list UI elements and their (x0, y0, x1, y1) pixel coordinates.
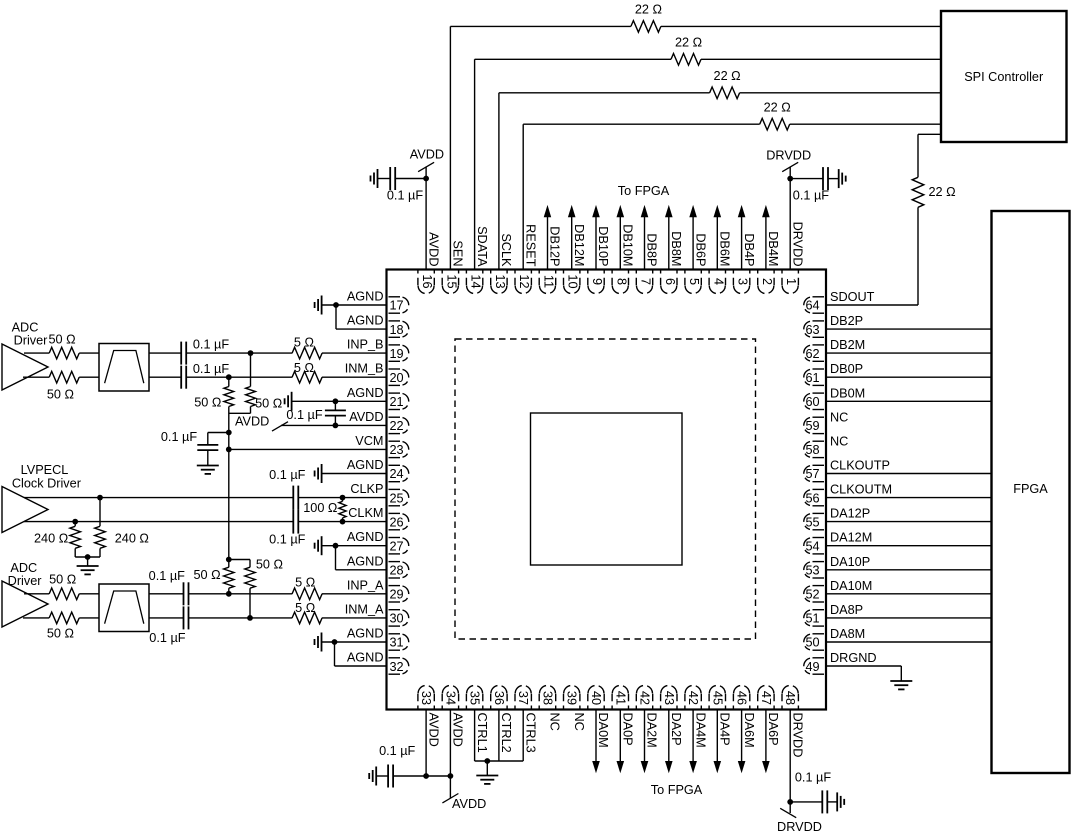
svg-text:50 Ω: 50 Ω (194, 396, 221, 410)
svg-text:22 Ω: 22 Ω (764, 100, 791, 114)
svg-text:DA4M: DA4M (693, 713, 707, 748)
svg-text:DA0M: DA0M (596, 713, 610, 748)
svg-text:DB8P: DB8P (645, 233, 659, 266)
svg-text:33: 33 (419, 691, 433, 705)
svg-text:DA2M: DA2M (645, 713, 659, 748)
svg-text:22 Ω: 22 Ω (675, 35, 702, 49)
svg-text:FPGA: FPGA (1013, 482, 1048, 496)
svg-text:CTRL3: CTRL3 (523, 713, 537, 753)
svg-text:50: 50 (805, 636, 819, 650)
svg-text:64: 64 (805, 299, 819, 313)
svg-text:1: 1 (784, 278, 798, 285)
svg-text:5 Ω: 5 Ω (295, 576, 315, 590)
svg-text:NC: NC (830, 410, 848, 424)
svg-text:8: 8 (614, 278, 628, 285)
svg-text:35: 35 (468, 691, 482, 705)
svg-text:22 Ω: 22 Ω (714, 69, 741, 83)
svg-text:4: 4 (711, 278, 725, 285)
svg-text:22 Ω: 22 Ω (635, 3, 662, 17)
svg-text:37: 37 (516, 691, 530, 705)
svg-text:18: 18 (389, 323, 403, 337)
svg-text:To FPGA: To FPGA (651, 783, 703, 797)
svg-text:100 Ω: 100 Ω (303, 501, 337, 515)
svg-text:AGND: AGND (347, 554, 384, 568)
svg-text:INM_B: INM_B (345, 362, 384, 376)
svg-text:20: 20 (389, 371, 403, 385)
svg-text:57: 57 (805, 467, 819, 481)
svg-text:240 Ω: 240 Ω (34, 531, 68, 545)
svg-text:CLKP: CLKP (350, 482, 383, 496)
svg-text:2: 2 (760, 278, 774, 285)
svg-text:AVDD: AVDD (410, 148, 444, 162)
svg-text:SDOUT: SDOUT (830, 290, 875, 304)
svg-text:22: 22 (389, 419, 403, 433)
svg-text:50 Ω: 50 Ω (48, 333, 75, 347)
svg-text:Clock Driver: Clock Driver (12, 477, 82, 491)
svg-text:22 Ω: 22 Ω (929, 185, 956, 199)
svg-text:23: 23 (389, 443, 403, 457)
svg-text:30: 30 (389, 612, 403, 626)
svg-text:AVDD: AVDD (451, 713, 465, 747)
svg-text:AGND: AGND (347, 627, 384, 641)
svg-text:54: 54 (805, 539, 819, 553)
svg-text:DA8M: DA8M (830, 627, 865, 641)
svg-text:0.1 µF: 0.1 µF (161, 430, 197, 444)
svg-text:47: 47 (759, 691, 773, 705)
svg-text:AGND: AGND (347, 386, 384, 400)
svg-text:25: 25 (389, 491, 403, 505)
svg-text:DRGND: DRGND (830, 651, 877, 665)
svg-text:0.1 µF: 0.1 µF (269, 468, 305, 482)
svg-text:DB6M: DB6M (718, 231, 732, 266)
svg-text:DRVDD: DRVDD (766, 149, 811, 163)
svg-text:AGND: AGND (347, 530, 384, 544)
svg-text:60: 60 (805, 395, 819, 409)
svg-text:50 Ω: 50 Ω (47, 388, 74, 402)
svg-text:DRVDD: DRVDD (777, 820, 822, 832)
svg-text:To FPGA: To FPGA (618, 184, 670, 198)
svg-text:DA12P: DA12P (830, 507, 870, 521)
svg-text:AGND: AGND (347, 458, 384, 472)
svg-text:58: 58 (805, 443, 819, 457)
svg-text:SCLK: SCLK (499, 233, 513, 267)
svg-text:45: 45 (710, 691, 724, 705)
svg-text:AVDD: AVDD (452, 797, 486, 811)
svg-text:39: 39 (565, 691, 579, 705)
svg-text:0.1 µF: 0.1 µF (193, 338, 229, 352)
svg-text:VCM: VCM (355, 434, 383, 448)
svg-text:36: 36 (492, 691, 506, 705)
svg-text:53: 53 (805, 564, 819, 578)
svg-text:24: 24 (389, 467, 403, 481)
svg-text:5 Ω: 5 Ω (294, 335, 314, 349)
svg-text:0.1 µF: 0.1 µF (387, 189, 423, 203)
svg-text:CTRL2: CTRL2 (499, 713, 513, 753)
svg-text:5 Ω: 5 Ω (294, 361, 314, 375)
svg-text:AVDD: AVDD (426, 713, 440, 747)
svg-text:0.1 µF: 0.1 µF (793, 189, 829, 203)
svg-text:49: 49 (805, 660, 819, 674)
svg-text:32: 32 (389, 660, 403, 674)
svg-text:DB0P: DB0P (830, 362, 863, 376)
svg-text:DA12M: DA12M (830, 531, 872, 545)
svg-text:51: 51 (805, 612, 819, 626)
svg-text:SEN: SEN (451, 240, 465, 266)
svg-text:AVDD: AVDD (426, 232, 440, 266)
svg-text:AGND: AGND (347, 651, 384, 665)
svg-text:19: 19 (389, 347, 403, 361)
svg-text:DB12M: DB12M (572, 224, 586, 266)
svg-text:SDATA: SDATA (475, 226, 489, 267)
svg-text:DB8M: DB8M (669, 231, 683, 266)
svg-text:46: 46 (735, 691, 749, 705)
svg-text:9: 9 (590, 278, 604, 285)
svg-text:6: 6 (663, 278, 677, 285)
svg-text:0.1 µF: 0.1 µF (379, 744, 415, 758)
svg-text:0.1 µF: 0.1 µF (795, 771, 831, 785)
svg-text:DB10M: DB10M (621, 224, 635, 266)
svg-text:DB4P: DB4P (742, 233, 756, 266)
svg-text:10: 10 (566, 274, 580, 288)
svg-text:41: 41 (613, 691, 627, 705)
svg-text:DA10P: DA10P (830, 555, 870, 569)
svg-text:0.1 µF: 0.1 µF (269, 533, 305, 547)
svg-text:RESET: RESET (523, 224, 537, 267)
svg-text:240 Ω: 240 Ω (115, 531, 149, 545)
svg-text:3: 3 (736, 278, 750, 285)
svg-text:CLKOUTP: CLKOUTP (830, 459, 890, 473)
svg-text:SPI Controller: SPI Controller (964, 70, 1044, 84)
svg-text:0.1 µF: 0.1 µF (149, 631, 185, 645)
svg-text:NC: NC (830, 434, 848, 448)
svg-text:INM_A: INM_A (345, 602, 384, 616)
svg-text:INP_A: INP_A (347, 578, 384, 592)
svg-text:0.1 µF: 0.1 µF (193, 362, 229, 376)
svg-text:DB2P: DB2P (830, 314, 863, 328)
svg-text:50 Ω: 50 Ω (49, 572, 76, 586)
svg-text:42: 42 (686, 691, 700, 705)
svg-text:43: 43 (662, 691, 676, 705)
svg-text:DB10P: DB10P (596, 226, 610, 266)
svg-text:DA10M: DA10M (830, 579, 872, 593)
svg-text:NC: NC (572, 713, 586, 731)
svg-text:63: 63 (805, 323, 819, 337)
svg-text:59: 59 (805, 419, 819, 433)
svg-text:DRVDD: DRVDD (790, 713, 804, 758)
svg-text:52: 52 (805, 588, 819, 602)
svg-text:11: 11 (542, 275, 556, 288)
svg-text:DB6P: DB6P (693, 233, 707, 266)
svg-text:5 Ω: 5 Ω (295, 601, 315, 615)
svg-text:26: 26 (389, 515, 403, 529)
svg-text:LVPECL: LVPECL (21, 463, 69, 477)
svg-text:CLKM: CLKM (348, 506, 383, 520)
svg-text:ADC: ADC (12, 321, 39, 335)
svg-text:40: 40 (589, 691, 603, 705)
svg-text:50 Ω: 50 Ω (256, 558, 283, 572)
svg-text:DA6M: DA6M (742, 713, 756, 748)
svg-text:48: 48 (783, 691, 797, 705)
svg-text:61: 61 (805, 371, 819, 385)
svg-text:DB0M: DB0M (830, 386, 865, 400)
svg-text:12: 12 (517, 274, 531, 288)
svg-text:50 Ω: 50 Ω (255, 397, 282, 411)
svg-text:50 Ω: 50 Ω (47, 627, 74, 641)
svg-text:AVDD: AVDD (349, 410, 383, 424)
svg-text:DA4P: DA4P (718, 713, 732, 746)
svg-text:0.1 µF: 0.1 µF (149, 569, 185, 583)
svg-text:62: 62 (805, 347, 819, 361)
svg-text:DB12P: DB12P (548, 226, 562, 266)
svg-text:5: 5 (687, 278, 701, 285)
svg-text:DA0P: DA0P (621, 713, 635, 746)
svg-text:DA8P: DA8P (830, 603, 863, 617)
svg-text:15: 15 (444, 274, 458, 288)
svg-text:16: 16 (420, 274, 434, 288)
svg-text:50 Ω: 50 Ω (193, 568, 220, 582)
svg-text:17: 17 (389, 299, 403, 313)
svg-text:14: 14 (469, 274, 483, 288)
svg-text:38: 38 (541, 691, 555, 705)
svg-text:DA2P: DA2P (669, 713, 683, 746)
svg-text:31: 31 (389, 636, 403, 650)
svg-text:DRVDD: DRVDD (790, 222, 804, 267)
svg-text:7: 7 (639, 278, 653, 285)
svg-text:28: 28 (389, 564, 403, 578)
svg-text:Driver: Driver (14, 334, 49, 348)
svg-text:CTRL1: CTRL1 (475, 713, 489, 753)
svg-text:56: 56 (805, 491, 819, 505)
svg-text:CLKOUTM: CLKOUTM (830, 483, 892, 497)
svg-text:DB2M: DB2M (830, 338, 865, 352)
svg-text:0.1 µF: 0.1 µF (286, 408, 322, 422)
svg-text:27: 27 (389, 539, 403, 553)
svg-text:AGND: AGND (347, 314, 384, 328)
svg-text:DA6P: DA6P (766, 713, 780, 746)
svg-text:34: 34 (443, 691, 457, 705)
svg-text:INP_B: INP_B (347, 338, 384, 352)
svg-text:NC: NC (548, 713, 562, 731)
svg-text:13: 13 (493, 274, 507, 288)
svg-text:55: 55 (805, 515, 819, 529)
svg-text:AVDD: AVDD (235, 414, 269, 428)
svg-text:DB4M: DB4M (766, 231, 780, 266)
svg-text:42: 42 (638, 691, 652, 705)
svg-text:29: 29 (389, 588, 403, 602)
svg-text:21: 21 (389, 395, 403, 409)
svg-text:AGND: AGND (347, 290, 384, 304)
